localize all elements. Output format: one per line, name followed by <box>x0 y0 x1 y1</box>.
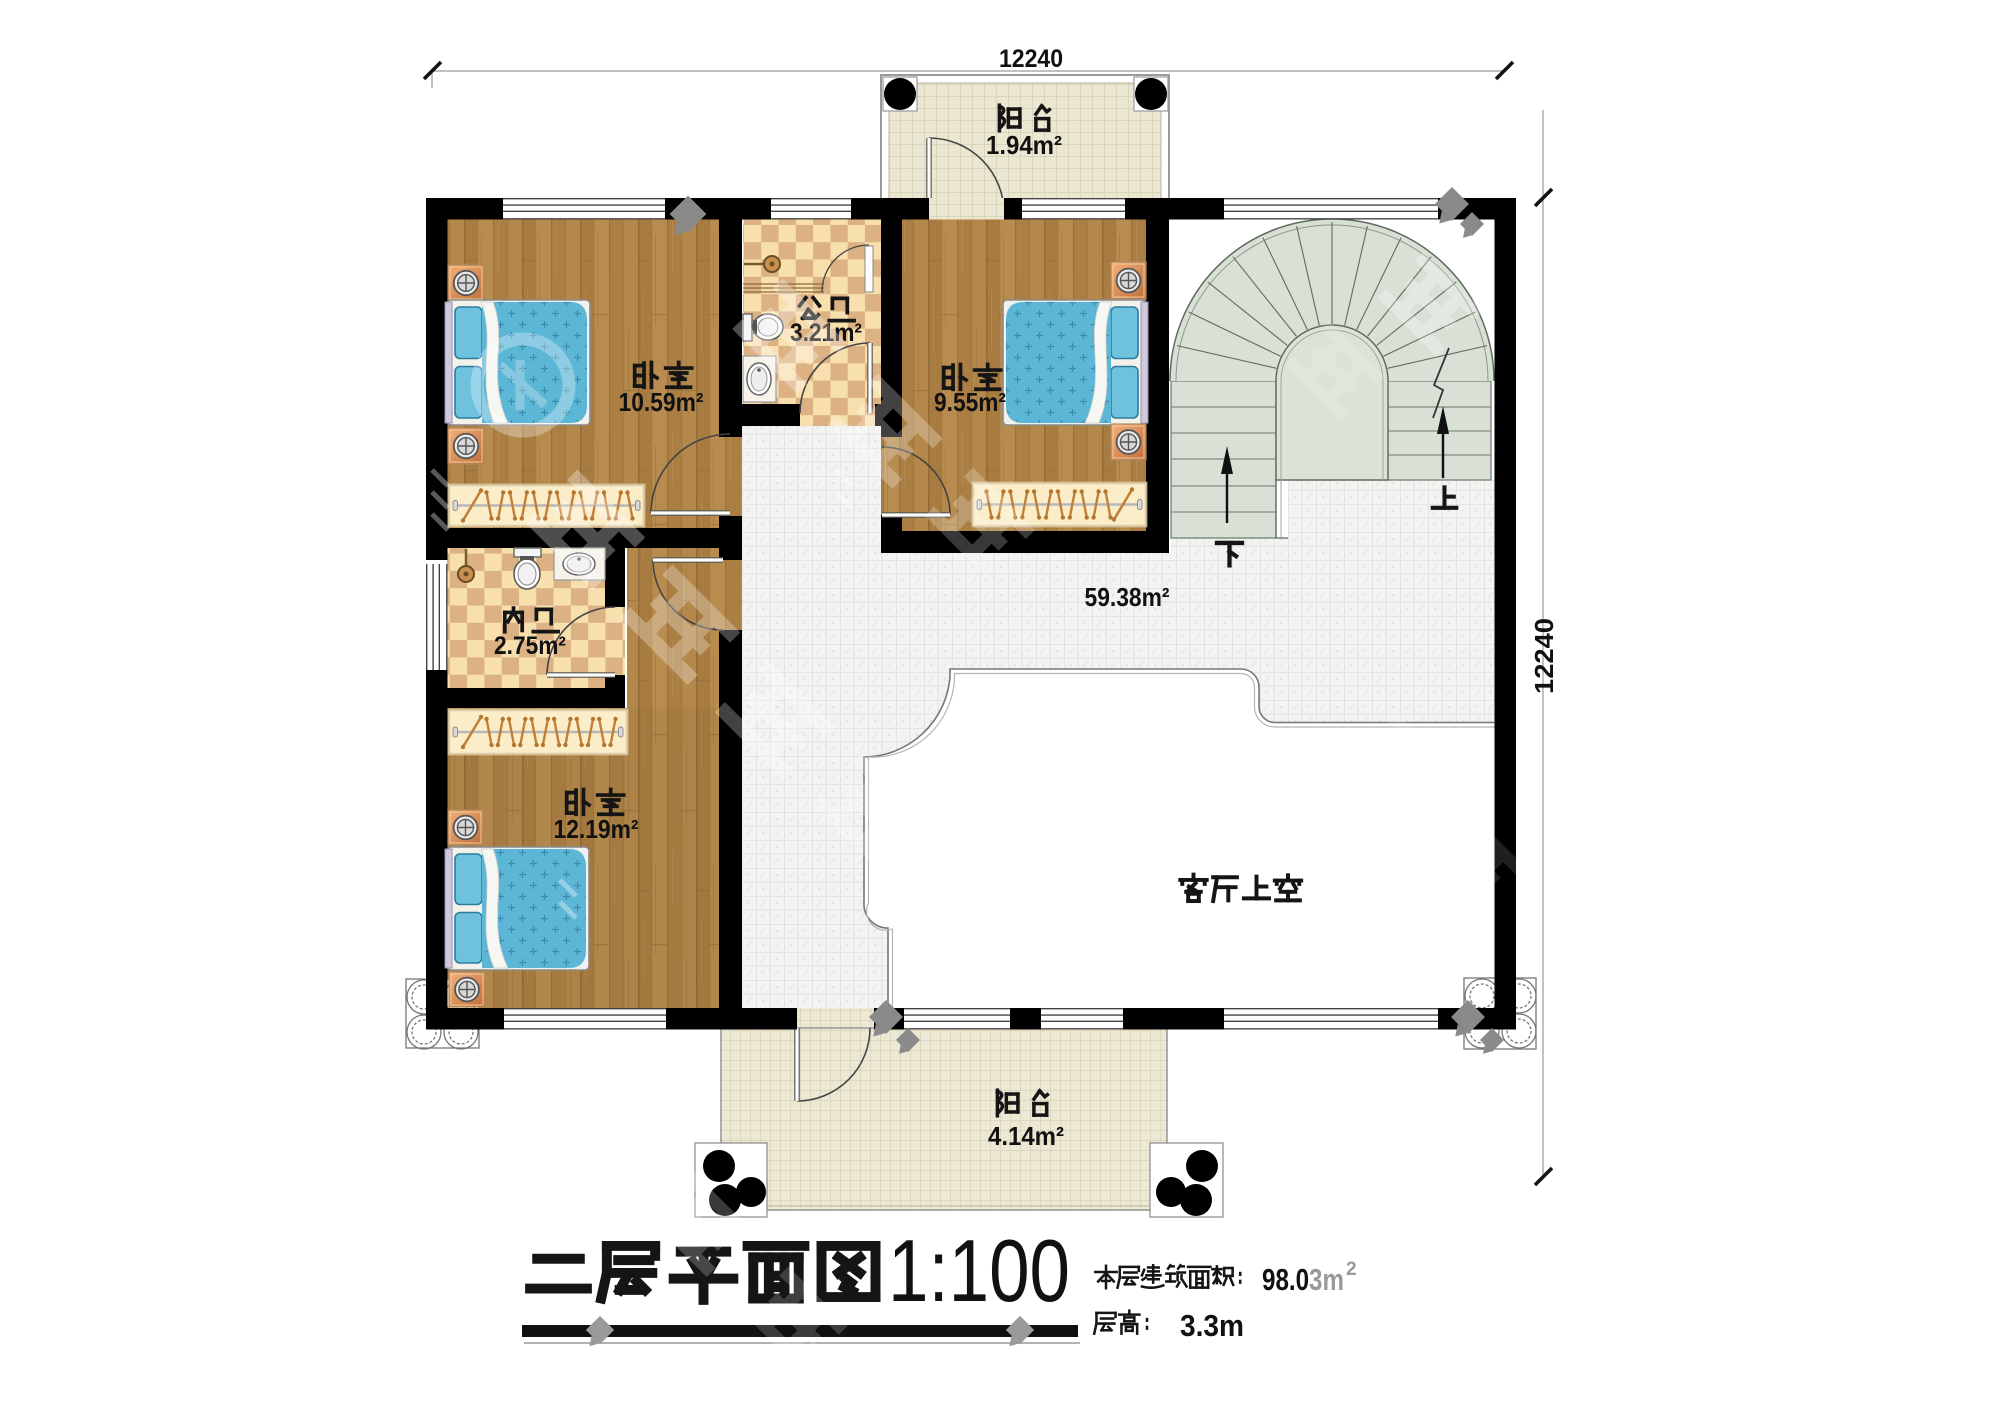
svg-text:1:100: 1:100 <box>888 1221 1070 1320</box>
svg-text:9.55m²: 9.55m² <box>934 387 1006 417</box>
svg-text:12.19m²: 12.19m² <box>554 814 639 844</box>
svg-text:10.59m²: 10.59m² <box>619 387 704 417</box>
svg-text:12240: 12240 <box>999 45 1063 73</box>
svg-text:59.38m²: 59.38m² <box>1085 582 1170 612</box>
svg-text:12240: 12240 <box>1529 618 1559 694</box>
svg-text:98.03m: 98.03m <box>1262 1262 1344 1297</box>
svg-text:4.14m²: 4.14m² <box>988 1121 1064 1151</box>
svg-text:2: 2 <box>1346 1259 1357 1280</box>
svg-text:1.94m²: 1.94m² <box>986 130 1062 160</box>
svg-text:3.3m: 3.3m <box>1180 1308 1244 1343</box>
svg-text:2.75m²: 2.75m² <box>494 632 566 660</box>
